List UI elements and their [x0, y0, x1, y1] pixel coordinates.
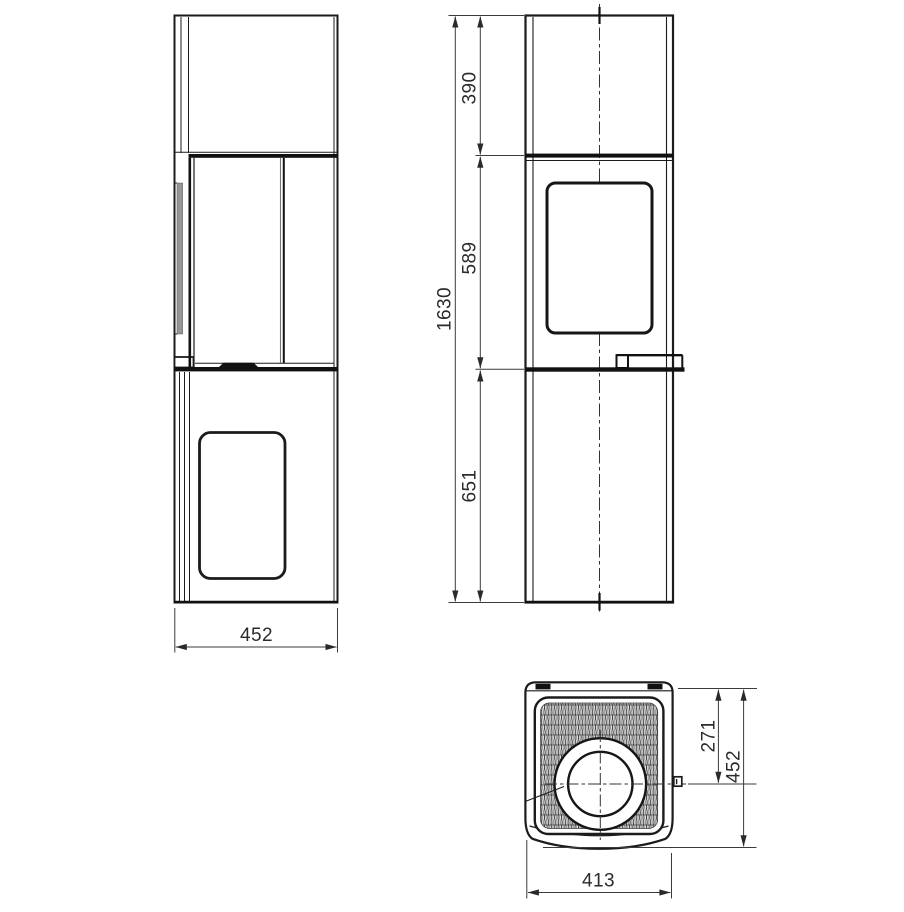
side-base-opening — [200, 433, 286, 579]
side-divider1-band — [189, 154, 338, 158]
dim-text-flue-offset: 271 — [699, 720, 720, 753]
dim-text-width-top: 413 — [582, 871, 615, 892]
front-door-window — [547, 183, 652, 333]
side-divider2-band — [175, 367, 338, 371]
dim-text-total-height: 1630 — [435, 287, 456, 331]
top-back-hinge-block — [536, 684, 551, 690]
technical-drawing-canvas: 1630 390 589 651 452 271 452 413 — [0, 0, 904, 912]
front-divider2-band — [526, 367, 685, 371]
side-view — [175, 16, 338, 603]
top-handle-tab — [674, 777, 682, 786]
top-back-hinge-block — [648, 684, 663, 690]
dim-text-firebox-section: 589 — [460, 242, 481, 275]
dim-text-depth-side: 452 — [240, 625, 273, 646]
side-door-glass-edge — [177, 183, 183, 334]
side-floor-ridge — [219, 363, 258, 367]
front-door-handle-notch — [617, 355, 629, 368]
dim-text-base-section: 651 — [460, 470, 481, 503]
dim-text-top-section: 390 — [460, 72, 481, 105]
dim-text-depth-top: 452 — [724, 750, 745, 783]
front-divider1-band — [526, 154, 674, 158]
stove-dimension-drawing: 1630 390 589 651 452 271 452 413 — [0, 0, 904, 912]
top-view — [525, 682, 688, 849]
front-view — [525, 4, 685, 613]
